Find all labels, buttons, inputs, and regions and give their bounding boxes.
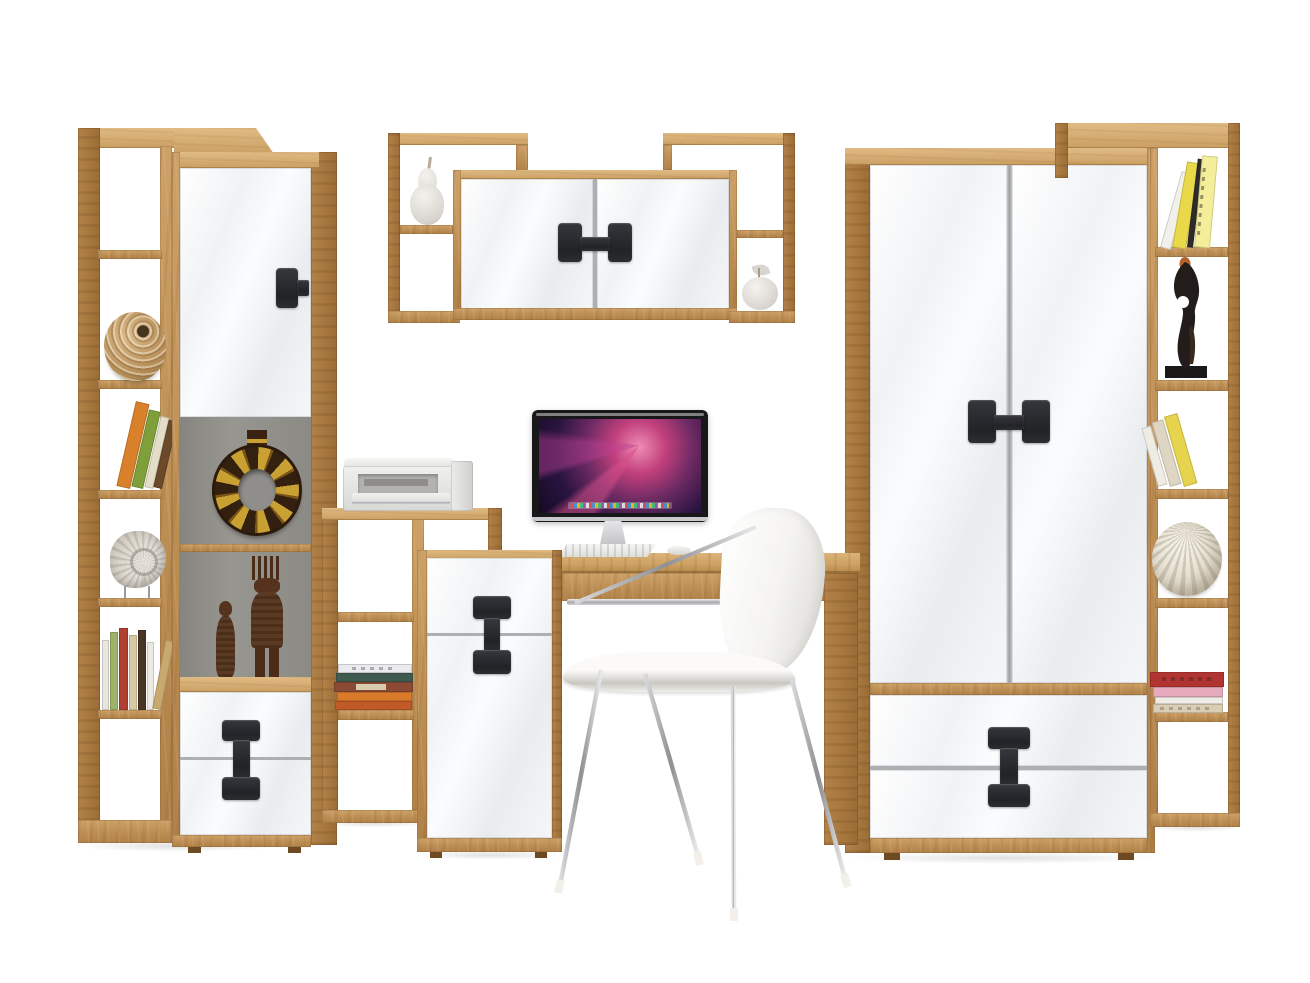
wardrobe-handle-left (968, 400, 996, 443)
drawer-handle-stem (233, 740, 250, 778)
shell-stand-leg (124, 586, 126, 599)
shell-stand-leg (148, 586, 150, 599)
drawer-handle-stem (484, 618, 500, 651)
right-bookcase-overhang-wall (1055, 123, 1068, 178)
wall-cabinet-right-edge (729, 170, 737, 320)
shelf (1155, 712, 1228, 722)
shelf (737, 230, 783, 238)
book (1155, 697, 1223, 704)
book-title (1162, 677, 1212, 681)
book (336, 673, 413, 682)
right-bookcase-top (1055, 123, 1240, 148)
wardrobe-mid-band (870, 683, 1147, 695)
right-bookcase-bottom (1150, 813, 1240, 827)
right-bookcase-side (1228, 123, 1240, 827)
chair-legs (540, 495, 870, 935)
stepped-shelf-bottom (322, 810, 426, 823)
carved-sphere (1152, 522, 1222, 596)
shelf (338, 710, 414, 720)
wall-shelf-right-step (663, 145, 672, 170)
stepped-shelf-left-wall (322, 508, 338, 823)
shelf (1155, 598, 1228, 608)
wardrobe-handle-right (1022, 400, 1050, 443)
wardrobe-top (845, 148, 1155, 165)
cabinet-foot (188, 847, 201, 853)
book (1153, 687, 1223, 697)
drawer-handle-bottom (988, 784, 1030, 807)
wall-shelf-right-top (663, 133, 795, 145)
shelf (98, 250, 162, 259)
wardrobe-handle-bar (994, 415, 1024, 430)
apple-leaf (752, 262, 771, 278)
shelf (98, 380, 162, 389)
left-bookcase-side (78, 128, 100, 843)
display-cabinet-bottom (172, 835, 311, 847)
niche-shelf (180, 544, 311, 552)
shelf (1155, 489, 1228, 499)
figurine-small-head (219, 601, 232, 616)
book-title (352, 667, 396, 670)
wardrobe-foot (1118, 853, 1134, 860)
book-title (1160, 707, 1212, 710)
printer-slot (364, 479, 428, 486)
imac-bezel-highlight (536, 413, 704, 416)
left-bookcase-top-extension (174, 128, 274, 154)
figurine-small-body (216, 616, 235, 677)
printer-tray-edge (352, 501, 450, 504)
wall-cabinet-top (453, 170, 737, 179)
double-door-handle-right (608, 223, 632, 262)
ring-vase-hole (238, 469, 276, 511)
drawer-handle-top (988, 727, 1030, 749)
display-cabinet-top (172, 152, 319, 168)
wardrobe-bottom (870, 838, 1147, 853)
shelf (98, 490, 162, 499)
shelf (338, 612, 414, 622)
furniture-set-photo (0, 0, 1310, 983)
book (335, 701, 412, 710)
wall-shelf-left-bottom (388, 311, 460, 323)
wall-shelf-left-step (516, 145, 528, 173)
shelf (98, 710, 162, 719)
drawer-handle-top (473, 596, 511, 619)
wall-shelf-left-wall (388, 133, 400, 323)
wall-shelf-left-top (388, 133, 528, 145)
figurine-large-leg (269, 646, 279, 677)
drawer-unit-top (180, 677, 311, 692)
apple-body (742, 277, 778, 310)
shelf (400, 225, 453, 234)
figurine-large-leg (255, 646, 265, 677)
shell-spiral (130, 548, 158, 576)
cabinet-foot (430, 852, 442, 858)
wardrobe-foot (884, 853, 900, 860)
drawer-handle-stem (1000, 748, 1018, 785)
book (337, 692, 412, 701)
book (138, 630, 146, 710)
double-door-handle-left (558, 223, 582, 262)
drawer-handle-bottom (222, 777, 260, 800)
book-label (356, 684, 386, 690)
wall-shelf-right-wall (783, 133, 795, 323)
door-handle-connector (297, 280, 309, 296)
figurine-large-comb (252, 556, 282, 580)
pear-body (410, 184, 444, 225)
book (102, 640, 109, 710)
double-door-handle-bar (580, 237, 610, 251)
door-handle (276, 268, 298, 308)
display-cabinet-left-edge (172, 152, 180, 845)
drawer-handle-bottom (473, 650, 511, 674)
left-bookcase-bottom (78, 820, 172, 843)
wicker-ball-vase (104, 312, 166, 381)
wall-cabinet-left-edge (453, 170, 461, 320)
black-figurine (1162, 256, 1210, 382)
figurine-large-body (251, 592, 283, 648)
book (129, 635, 137, 710)
cabinet-foot (288, 847, 301, 853)
drawer-handle-top (222, 720, 260, 741)
wall-cabinet-bottom (453, 308, 737, 320)
book (110, 632, 118, 710)
desk-cabinet-left (417, 550, 427, 843)
printer-tower (451, 461, 473, 511)
wall-shelf-right-bottom (729, 311, 795, 323)
shelf (98, 598, 162, 607)
book (119, 628, 128, 710)
display-niche (180, 552, 311, 677)
